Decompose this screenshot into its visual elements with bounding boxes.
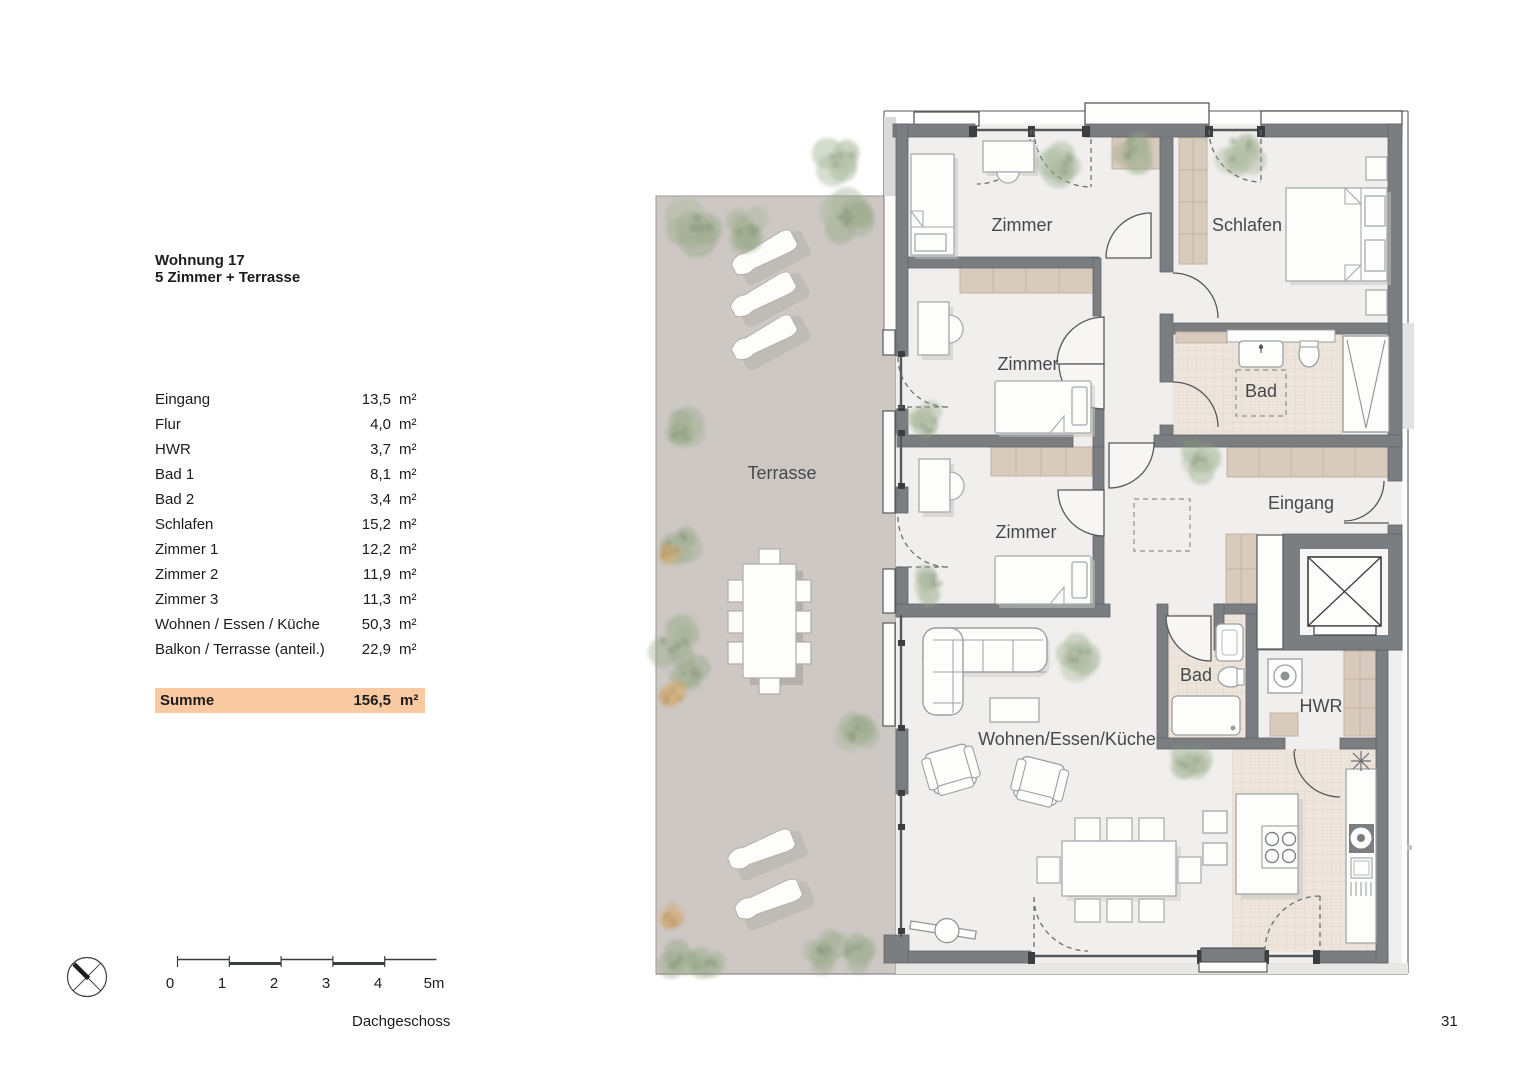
svg-text:Bad: Bad: [1245, 381, 1277, 401]
svg-text:HWR: HWR: [1300, 696, 1343, 716]
svg-text:Schlafen: Schlafen: [1212, 215, 1282, 235]
svg-text:Bad: Bad: [1180, 665, 1212, 685]
svg-text:Wohnen/Essen/Küche: Wohnen/Essen/Küche: [978, 729, 1156, 749]
svg-text:Zimmer: Zimmer: [996, 522, 1057, 542]
svg-text:Terrasse: Terrasse: [747, 463, 816, 483]
svg-text:0: 0: [166, 975, 174, 992]
svg-text:Zimmer: Zimmer: [992, 215, 1053, 235]
svg-text:Zimmer: Zimmer: [998, 354, 1059, 374]
svg-text:3: 3: [322, 975, 330, 992]
svg-text:Eingang: Eingang: [1268, 493, 1334, 513]
svg-text:5m: 5m: [424, 975, 445, 992]
svg-text:4: 4: [374, 975, 382, 992]
svg-text:1: 1: [218, 975, 226, 992]
svg-text:2: 2: [270, 975, 278, 992]
